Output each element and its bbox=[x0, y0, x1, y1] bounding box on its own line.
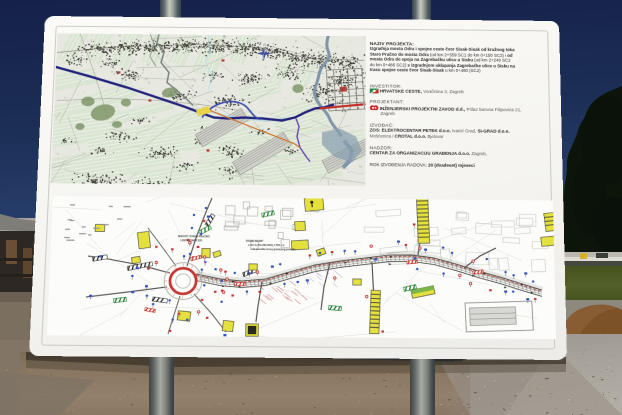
svg-text:1.DIO DIONICE BR.: 1.DIO DIONICE BR. bbox=[180, 239, 203, 242]
svg-text:RADNI 'NASIP': RADNI 'NASIP' bbox=[246, 240, 264, 243]
svg-text:- rok pocetka iznog granicnog: - rok pocetka iznog granicnog podatka bbox=[250, 248, 297, 251]
svg-text:MJESTO 'STARO PRACNO': MJESTO 'STARO PRACNO' bbox=[178, 235, 211, 238]
svg-text:u km 0+151+86 (SC2), LTD1 i iz: u km 0+151+86 (SC2), LTD1 i iz bbox=[248, 244, 285, 247]
